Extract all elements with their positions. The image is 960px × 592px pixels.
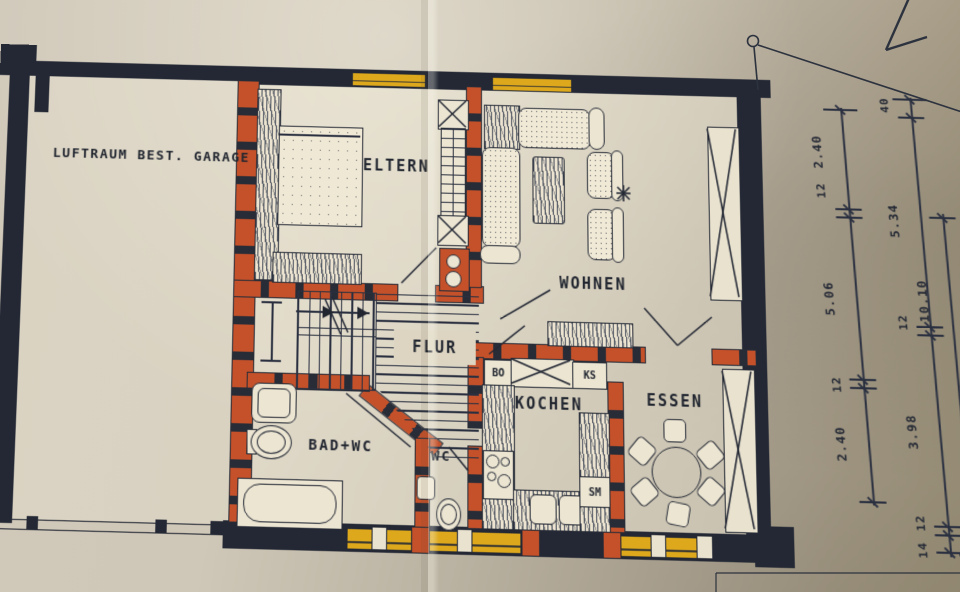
floorplan-photo: FLUR BO KS SM [0, 0, 960, 592]
leader-drop-line [754, 47, 758, 90]
corner-mark-a [886, 0, 909, 50]
leader-node-circle [748, 36, 759, 47]
roof-edge-line [758, 45, 960, 112]
annotation-lines [0, 0, 960, 592]
